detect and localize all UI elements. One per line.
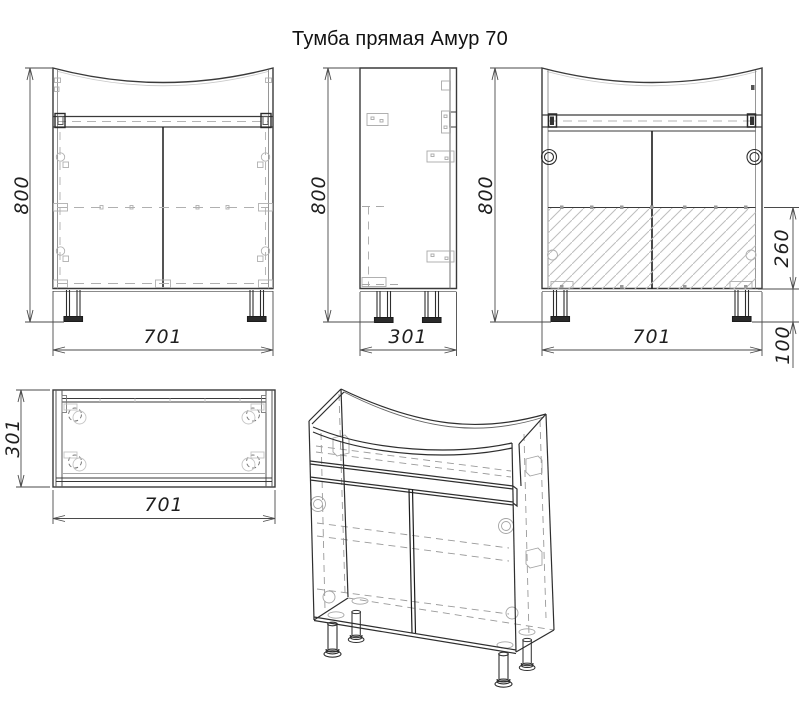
front-height-label: 800 (11, 175, 33, 214)
back-width-label: 701 (632, 326, 671, 348)
back-panel-height-label: 260 (771, 228, 793, 267)
drawing-sheet: Тумба прямая Амур 70 (0, 0, 800, 702)
side-notch (450, 112, 457, 127)
side-view: 800 301 (308, 68, 457, 356)
top-view: 301 701 (2, 390, 275, 524)
front-view: 800 701 (11, 68, 273, 356)
hatch-area (548, 208, 756, 290)
iso-hidden-lines (316, 394, 554, 636)
side-hidden-details (362, 81, 454, 287)
top-leg-circles (69, 408, 260, 468)
top-door-edge (56, 478, 272, 482)
front-legs (53, 290, 273, 322)
front-width-label: 701 (143, 326, 182, 348)
side-dim-height (323, 68, 375, 322)
side-legs (375, 291, 442, 323)
iso-door-split (409, 489, 416, 633)
back-leg-height-label: 100 (772, 325, 794, 364)
back-view: 800 701 260 100 (475, 68, 799, 368)
isometric-view (309, 389, 554, 687)
front-curve-inner (58, 72, 268, 86)
iso-outline (309, 389, 554, 654)
top-width-label: 701 (144, 494, 183, 516)
page-title: Тумба прямая Амур 70 (292, 28, 508, 50)
back-legs (542, 290, 762, 322)
side-outline (360, 68, 457, 289)
iso-hardware (311, 435, 543, 648)
top-side-panels (56, 390, 272, 487)
top-back-edge (62, 399, 266, 403)
side-height-label: 800 (308, 175, 330, 214)
top-depth-label: 301 (2, 418, 24, 457)
back-height-label: 800 (475, 175, 497, 214)
side-depth-label: 301 (388, 326, 427, 348)
drawing-canvas: Тумба прямая Амур 70 (0, 0, 800, 702)
top-outline (53, 390, 275, 487)
